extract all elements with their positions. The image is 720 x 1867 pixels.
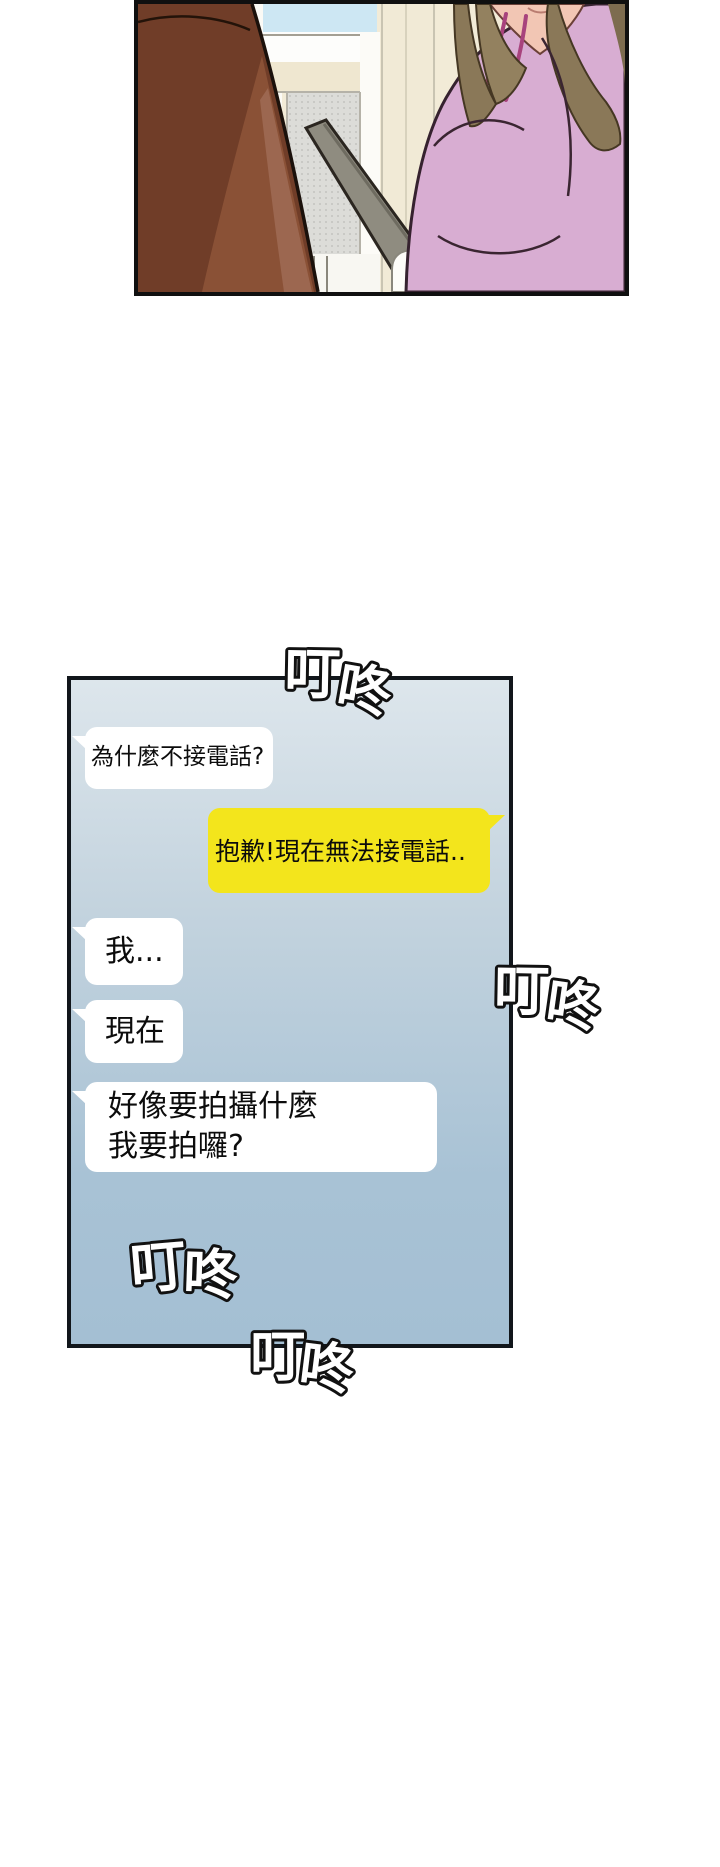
- chat-bubble-sent: 抱歉!現在無法接電話..: [208, 808, 490, 893]
- window-frame-right-strip: [360, 32, 380, 292]
- sfx-char: 叮: [128, 1233, 189, 1303]
- sfx-ding-dong-4: 叮 咚: [238, 1313, 388, 1408]
- scene-panel: [134, 0, 629, 296]
- chat-bubble-received-3: 現在: [85, 1000, 183, 1063]
- scene-illustration: [138, 4, 625, 292]
- comic-page: 為什麼不接電話? 抱歉!現在無法接電話.. 我... 現在 好像要拍攝什麼 我要…: [0, 0, 720, 1867]
- sfx-char: 咚: [542, 972, 604, 1040]
- sfx-char: 咚: [182, 1242, 239, 1307]
- chat-message-text: 抱歉!現在無法接電話..: [215, 836, 466, 869]
- chat-bubble-received-2: 我...: [85, 918, 183, 985]
- chat-message-text: 好像要拍攝什麼 我要拍囉?: [108, 1087, 318, 1167]
- sfx-char: 咚: [296, 1334, 358, 1403]
- chat-bubble-received-1: 為什麼不接電話?: [85, 727, 273, 789]
- sfx-ding-dong-1: 叮 咚: [278, 636, 428, 731]
- chat-message-text: 為什麼不接電話?: [91, 743, 264, 773]
- chat-message-text: 我...: [105, 932, 164, 971]
- sfx-char: 叮: [494, 959, 550, 1024]
- sfx-char: 咚: [333, 655, 398, 727]
- chat-message-text: 現在: [105, 1012, 165, 1051]
- sfx-char: 叮: [284, 642, 341, 708]
- sfx-ding-dong-3: 叮 咚: [120, 1220, 270, 1315]
- sfx-char: 叮: [250, 1325, 305, 1389]
- chat-bubble-received-4: 好像要拍攝什麼 我要拍囉?: [85, 1082, 437, 1172]
- window-sky: [263, 4, 377, 32]
- sfx-ding-dong-2: 叮 咚: [486, 950, 636, 1045]
